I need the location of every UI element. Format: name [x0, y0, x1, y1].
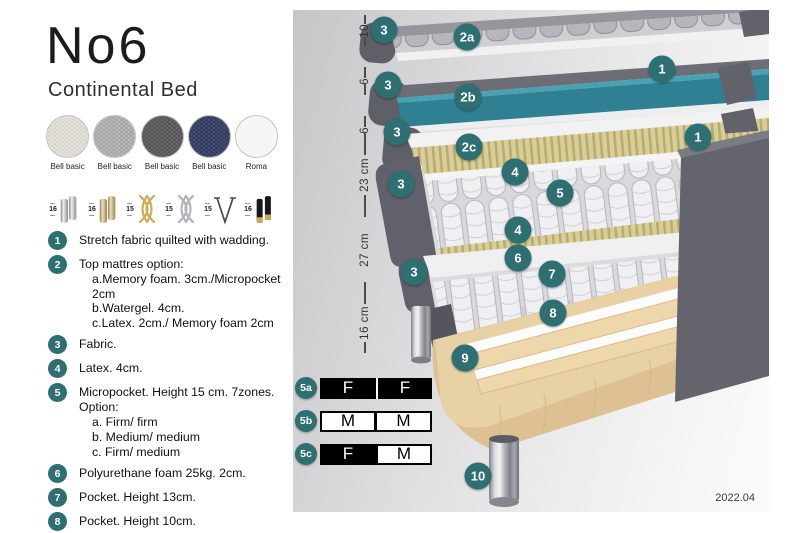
firmness-cells: MM — [320, 411, 432, 432]
fabric-swatch-label: Bell basicMCD43 — [145, 162, 179, 171]
list-item-5: 5Micropocket. Height 15 cm. 7zones. Opti… — [48, 383, 296, 459]
cylinder-silver-leg-icon — [58, 193, 80, 225]
cylinder-brass-leg-icon — [97, 193, 119, 225]
list-item-suboption: c. Firm/ medium — [92, 445, 296, 460]
leg-option-cylinder-brass: 16 — [84, 188, 123, 230]
leg-option-hairpin: 15 — [201, 188, 240, 230]
list-item-number: 5 — [48, 383, 67, 402]
diagram-badge-2a: 2a — [454, 24, 481, 51]
list-item-2: 2Top mattres option:a.Memory foam. 3cm./… — [48, 255, 296, 330]
fabric-swatch-circle — [188, 115, 231, 158]
leg-option-cylinder-silver: 16 — [45, 188, 84, 230]
leg-height-label: 15 — [204, 203, 212, 216]
diagram-badge-3: 3 — [401, 259, 428, 286]
fabric-swatch-label: Romastretch fabric — [246, 162, 267, 171]
diagram-badge-6: 6 — [505, 245, 532, 272]
diagram-badge-3: 3 — [388, 171, 415, 198]
diagram-badge-7: 7 — [539, 261, 566, 288]
firmness-badge: 5c — [295, 443, 317, 465]
diagram-badge-4: 4 — [502, 159, 529, 186]
list-item-text: Stretch fabric quilted with wadding. — [79, 231, 269, 250]
diagram-badge-3: 3 — [384, 119, 411, 146]
diagram-badge-3: 3 — [375, 72, 402, 99]
fabric-swatch-circle — [141, 115, 184, 158]
firmness-cell: M — [320, 411, 376, 432]
leg-height-label: 16 — [244, 203, 252, 216]
dimension-segment: 27 cm — [349, 206, 381, 293]
list-item-number: 4 — [48, 359, 67, 378]
list-item-6: 6Polyurethane foam 25kg. 2cm. — [48, 464, 296, 483]
diagram-badge-3: 3 — [371, 17, 398, 44]
fabric-swatch-circle — [235, 115, 278, 158]
list-item-text: Polyurethane foam 25kg. 2cm. — [79, 464, 246, 483]
fabric-swatch: Bell basicMCD43 — [139, 115, 184, 171]
list-item-number: 2 — [48, 255, 67, 274]
leg-height-label: 16 — [49, 203, 57, 216]
leg-option-cylinder-black-gold: 16 — [240, 188, 279, 230]
fabric-swatch-circle — [93, 115, 136, 158]
list-item-8: 8Pocket. Height 10cm. — [48, 512, 296, 531]
page-subtitle: Continental Bed — [48, 79, 198, 102]
fabric-swatch: Romastretch fabric — [234, 115, 279, 171]
firmness-cell: F — [320, 444, 376, 465]
fabric-swatch: Bell basicMCD32 — [92, 115, 137, 171]
list-item-number: 8 — [48, 512, 67, 531]
leg-height-label: 15 — [165, 203, 173, 216]
list-item-text: Fabric. — [79, 335, 117, 354]
diagram-badge-1: 1 — [649, 56, 676, 83]
leg-height-label: 15 — [126, 203, 134, 216]
list-item-suboption: a.Memory foam. 3cm./Micropocket 2cm — [92, 272, 296, 301]
list-item-number: 7 — [48, 488, 67, 507]
diagram-badge-8: 8 — [540, 300, 567, 327]
dimension-segment: 16 cm — [349, 293, 381, 353]
list-item-text: Top mattres option:a.Memory foam. 3cm./M… — [79, 255, 296, 330]
list-item-number: 3 — [48, 335, 67, 354]
list-item-text: Pocket. Height 10cm. — [79, 512, 196, 531]
firmness-table: 5aFF5bMM5cFM — [295, 377, 432, 476]
list-item-text: Pocket. Height 13cm. — [79, 488, 196, 507]
diagram-badge-1: 1 — [685, 124, 712, 151]
firmness-row-5a: 5aFF — [295, 377, 432, 399]
fabric-swatch: Bell basicMCD74 — [187, 115, 232, 171]
version-label: 2022.04 — [715, 492, 755, 504]
firmness-row-5c: 5cFM — [295, 443, 432, 465]
firmness-cell: F — [320, 378, 376, 399]
diagram-badge-9: 9 — [452, 345, 479, 372]
fabric-swatch-circle — [46, 115, 89, 158]
diagram-badge-2c: 2c — [456, 134, 483, 161]
list-item-1: 1Stretch fabric quilted with wadding. — [48, 231, 296, 250]
list-item-4: 4Latex. 4cm. — [48, 359, 296, 378]
list-item-suboption: c.Latex. 2cm./ Memory foam 2cm — [92, 316, 296, 331]
list-item-text: Micropocket. Height 15 cm. 7zones. Optio… — [79, 383, 296, 459]
infographic: No6 Continental Bed Bell basicMCD36Bell … — [0, 0, 800, 533]
fabric-swatch-label: Bell basicMCD74 — [192, 162, 226, 171]
cylinder-black-gold-leg-icon — [253, 193, 275, 225]
list-item-number: 6 — [48, 464, 67, 483]
diagram-badge-2b: 2b — [455, 84, 482, 111]
diagram-badge-4: 4 — [505, 217, 532, 244]
firmness-badge: 5b — [295, 410, 317, 432]
diagram-badge-5: 5 — [547, 180, 574, 207]
list-item-3: 3Fabric. — [48, 335, 296, 354]
component-list: 1Stretch fabric quilted with wadding.2To… — [48, 231, 296, 533]
bed-diagram-panel: 106623 cm27 cm16 cm 32a132b32c1345463789… — [293, 10, 769, 512]
fabric-swatch-label: Bell basicMCD32 — [98, 162, 132, 171]
leg-options: 161615151516 — [45, 188, 279, 230]
page-title: No6 — [46, 16, 150, 76]
dimension-segment: 6 — [349, 116, 381, 144]
leg-option-twist-gold: 15 — [123, 188, 162, 230]
dimension-segment: 23 cm — [349, 144, 381, 206]
fabric-swatch-label: Bell basicMCD36 — [50, 162, 84, 171]
firmness-cell: M — [376, 444, 432, 465]
list-item-text: Latex. 4cm. — [79, 359, 143, 378]
twist-gold-leg-icon — [135, 193, 159, 225]
leg-height-label: 16 — [88, 203, 96, 216]
firmness-cells: FF — [320, 378, 432, 399]
list-item-7: 7Pocket. Height 13cm. — [48, 488, 296, 507]
firmness-cell: F — [376, 378, 432, 399]
firmness-row-5b: 5bMM — [295, 410, 432, 432]
firmness-cells: FM — [320, 444, 432, 465]
list-item-suboption: b. Medium/ medium — [92, 430, 296, 445]
leg-option-twist-silver: 15 — [162, 188, 201, 230]
diagram-badge-10: 10 — [465, 463, 492, 490]
fabric-swatches: Bell basicMCD36Bell basicMCD32Bell basic… — [45, 115, 279, 171]
list-item-suboption: b.Watergel. 4cm. — [92, 301, 296, 316]
twist-silver-leg-icon — [174, 193, 198, 225]
list-item-number: 1 — [48, 231, 67, 250]
firmness-badge: 5a — [295, 377, 317, 399]
fabric-swatch: Bell basicMCD36 — [45, 115, 90, 171]
list-item-suboption: a. Firm/ firm — [92, 415, 296, 430]
firmness-cell: M — [376, 411, 432, 432]
hairpin-leg-icon — [213, 193, 237, 225]
